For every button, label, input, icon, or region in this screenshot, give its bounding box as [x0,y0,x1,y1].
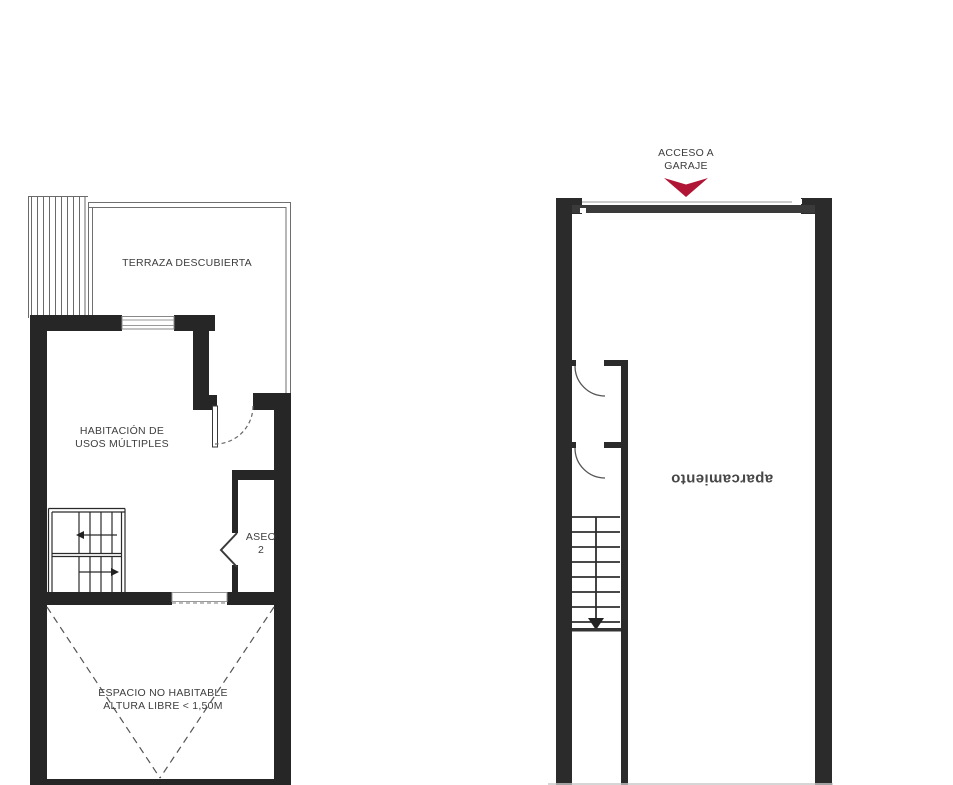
terrace-outline [88,202,291,396]
multi-use-room-label: HABITACIÓN DE USOS MÚLTIPLES [75,425,169,451]
floor-plan-drawing [0,0,953,785]
room-door-arcs [575,366,605,478]
garage-access-label: ACCESO A GARAJE [658,147,714,173]
window-middle [172,593,227,604]
room-door [213,406,254,447]
door-swing-arc [215,406,253,444]
stair-down-arrow-icon [111,568,119,576]
garage-access-arrow-icon [664,178,708,197]
right-plan-walls [556,198,832,785]
parking-label: aparcamiento [671,471,773,488]
window-top [122,317,174,330]
door-swing-arc [575,448,605,478]
garage-staircase [572,517,621,632]
floor-plan-page: { "drawing": { "colors": { "wall": "#262… [0,0,953,785]
garage-door [572,205,815,213]
terrace-louver-hatch [28,196,88,318]
door-swing-arc [575,366,605,396]
staircase [49,509,126,593]
bathroom-folding-door [221,533,237,567]
bathroom-label: ASEO 2 [246,531,276,557]
non-habitable-space-label: ESPACIO NO HABITABLE ALTURA LIBRE < 1,50… [98,687,227,713]
terrace-label: TERRAZA DESCUBIERTA [122,257,252,270]
stair-up-arrow-icon [76,531,84,539]
